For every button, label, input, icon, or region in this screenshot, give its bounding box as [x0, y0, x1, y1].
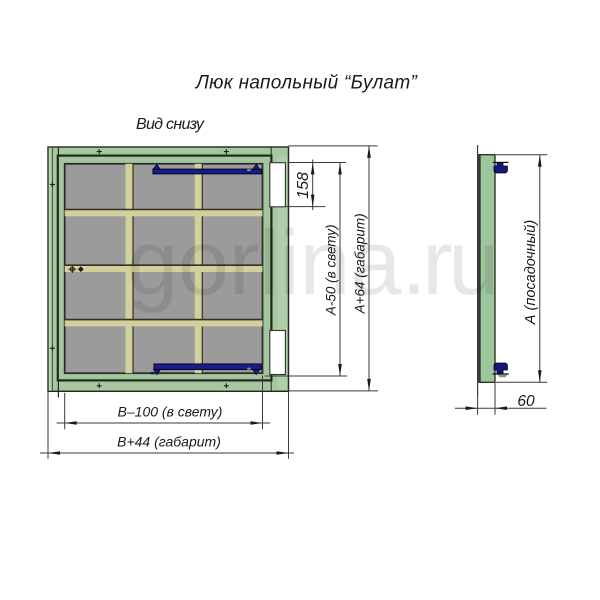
svg-text:В+44 (габарит): В+44 (габарит) — [117, 434, 221, 450]
svg-text:А (посадочный): А (посадочный) — [523, 220, 539, 325]
svg-text:158: 158 — [295, 172, 312, 199]
svg-text:В–100 (в свету): В–100 (в свету) — [118, 404, 223, 420]
svg-text:Люк напольный “Булат”: Люк напольный “Булат” — [194, 73, 419, 94]
svg-text:gorlina.ru: gorlina.ru — [127, 212, 495, 314]
svg-text:60: 60 — [517, 393, 535, 410]
svg-text:Вид снизу: Вид снизу — [136, 116, 205, 133]
